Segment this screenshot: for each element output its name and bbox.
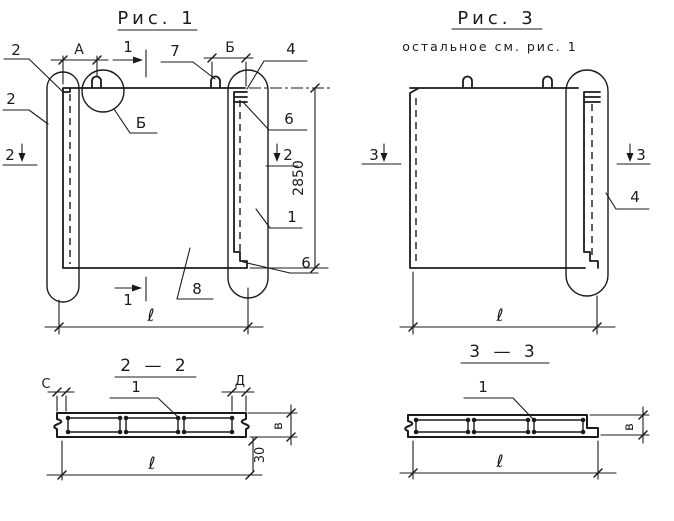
figure-1-callout-4: 4 [286,40,296,58]
section-2-2-dim-d-label: Д [235,374,245,389]
figure-1-callout-2-side: 2 [6,90,16,108]
figure-1-title: Рис. 1 [117,8,196,29]
section-2-2-title: 2 — 2 [120,356,189,376]
section-2-2-callout-1: 1 [131,378,141,396]
figure-1-section-cut-bottom-label: 1 [123,291,133,309]
figure-1-detail-circle-label: Б [136,114,146,132]
section-2-2-dim-offset-label: 30 [253,447,268,464]
figure-3-callout-4: 4 [630,188,640,206]
figure-1-section-cut-top-label: 1 [123,38,133,56]
figure-3-dim-length-label: ℓ [495,306,503,326]
figure-3-section-left-label: 3 [369,146,379,164]
section-2-2-dim-length-label: ℓ [147,454,155,474]
section-3-3-callout-1: 1 [478,378,488,396]
figure-1-callout-2-top: 2 [11,41,21,59]
figure-1-dim-height-label: 2850 [291,160,307,196]
figure-3-title: Рис. 3 [457,8,536,29]
section-3-3-dim-length-label: ℓ [495,452,503,472]
figure-1-detail-edge-top-label: 6 [284,110,294,128]
figure-1-callout-7: 7 [170,42,180,60]
drawing-sheet: Рис. 1 2 А 1 7 Б 4 6 Б 2 2 2 2850 1 8 6 … [0,0,674,521]
figure-1-callout-8: 8 [192,280,202,298]
figure-1-section-left-label: 2 [5,146,15,164]
figure-1-callout-1: 1 [287,208,297,226]
section-3-3-title: 3 — 3 [469,342,538,362]
section-3-3-dim-thickness-label: в [622,423,637,431]
section-2-2-dim-c-label: С [41,377,50,392]
technical-drawing: Рис. 1 2 А 1 7 Б 4 6 Б 2 2 2 2850 1 8 6 … [0,0,674,521]
figure-3-section-right-label: 3 [636,146,646,164]
figure-1-dim-length-label: ℓ [146,306,154,326]
section-2-2-dim-thickness-label: в [271,422,286,430]
figure-3-subtitle: остальное см. рис. 1 [402,39,577,54]
figure-1-dim-b-label: Б [225,40,235,56]
figure-1-detail-edge-bottom-label: 6 [301,254,311,272]
figure-1-dim-a-label: А [74,42,84,58]
